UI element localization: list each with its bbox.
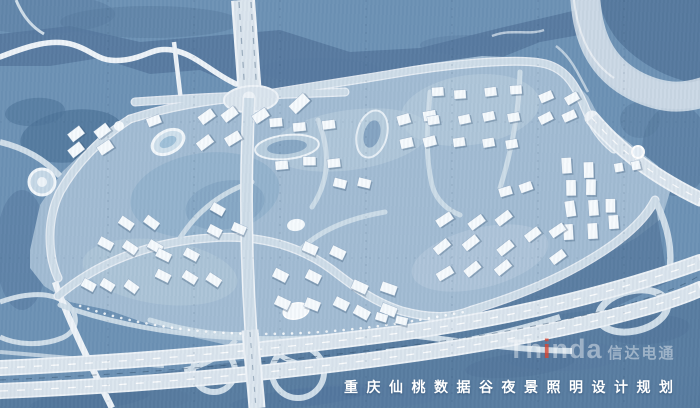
building xyxy=(588,199,599,216)
watermark-latin: Thinda xyxy=(508,334,603,365)
north-bridge xyxy=(243,0,250,96)
south-avenue xyxy=(250,330,257,408)
main-avenue xyxy=(247,98,251,332)
building xyxy=(507,112,520,123)
watermark-logo: Thinda 信达电通 xyxy=(508,334,676,365)
building xyxy=(303,156,316,165)
building xyxy=(587,223,598,240)
building xyxy=(564,200,576,217)
map-caption: 重庆仙桃数据谷夜景照明设计规划 xyxy=(344,377,682,397)
building xyxy=(453,137,466,148)
east-pavilion xyxy=(632,146,644,158)
building xyxy=(583,162,593,178)
building xyxy=(505,138,518,149)
watermark-latin-suffix: nda xyxy=(552,334,603,364)
watermark-cjk: 信达电通 xyxy=(608,342,676,363)
building xyxy=(614,162,624,172)
building xyxy=(566,180,576,196)
building xyxy=(605,199,615,213)
building xyxy=(292,122,306,132)
building xyxy=(510,85,523,95)
building xyxy=(269,117,283,127)
building xyxy=(322,119,336,130)
building xyxy=(482,137,495,148)
building xyxy=(327,158,341,168)
building xyxy=(275,160,289,170)
watermark-latin-prefix: Th xyxy=(508,334,543,364)
building xyxy=(608,215,619,230)
building xyxy=(431,87,444,97)
building xyxy=(454,90,467,100)
building xyxy=(427,115,440,126)
building xyxy=(586,179,596,195)
watermark-letter-i: i xyxy=(543,334,552,364)
building xyxy=(561,157,572,174)
building xyxy=(484,87,497,98)
building xyxy=(630,160,641,171)
map-stage: Thinda 信达电通 重庆仙桃数据谷夜景照明设计规划 xyxy=(0,0,700,408)
